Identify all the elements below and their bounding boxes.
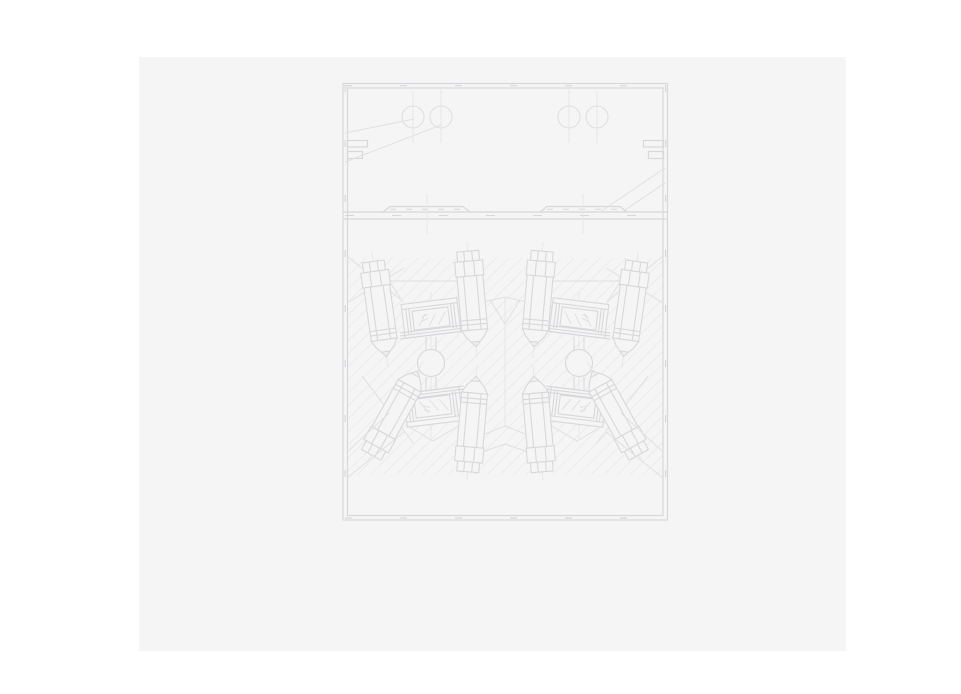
technical-drawing (0, 0, 961, 694)
page (0, 0, 961, 694)
